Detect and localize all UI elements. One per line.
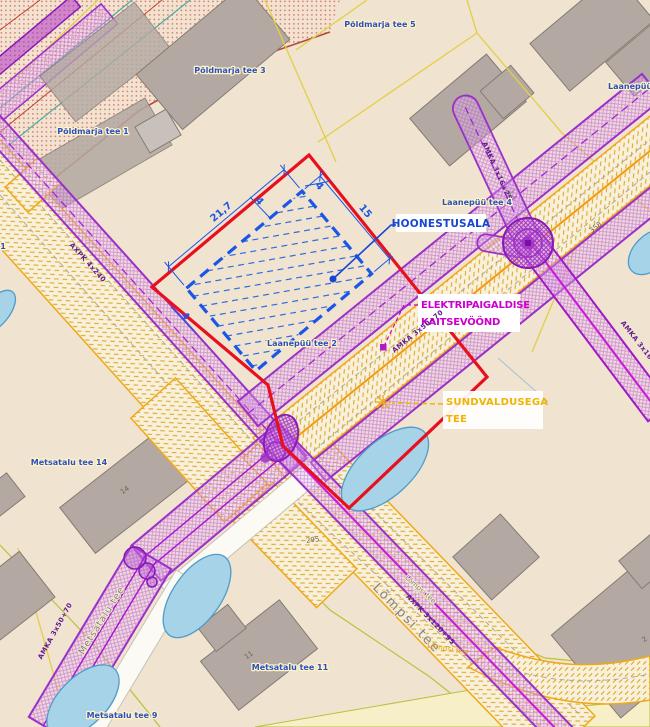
hoonestusala-label: HOONESTUSALA xyxy=(392,218,491,230)
parcel-label: Metsatalu tee 14 xyxy=(31,458,108,467)
map-canvas[interactable]: 21,7 15 4 4 4 HOONESTUSALA ELEKTRIPAIGAL… xyxy=(0,0,650,727)
hoonestusala-marker xyxy=(330,276,337,283)
callout-hoonestusala: HOONESTUSALA xyxy=(392,214,491,232)
sundvaldus-label-2: TEE xyxy=(446,414,467,425)
parcel-label: Laanepüü tee xyxy=(608,82,650,91)
parcel-label: Põldmarja tee 1 xyxy=(57,127,129,136)
sundvaldus-label-1: SUNDVALDUSEGA xyxy=(446,397,548,408)
sund-marker-icon xyxy=(375,395,391,409)
parcel-label: Metsatalu tee 11 xyxy=(252,663,329,672)
parcel-label: Laanepüü tee 4 xyxy=(442,198,512,207)
parcel-label: 1 xyxy=(0,242,6,251)
callout-sundvaldus: SUNDVALDUSEGA TEE xyxy=(443,391,548,429)
parcel-label: Põldmarja tee 3 xyxy=(194,66,265,75)
parcel-label: Metsatalu tee 9 xyxy=(87,711,158,720)
pole-cluster-east xyxy=(503,218,553,268)
parcel-label: Laanepüü tee 2 xyxy=(267,339,337,348)
parcel-label: Põldmarja tee 5 xyxy=(344,20,416,29)
map-viewport[interactable]: 21,7 15 4 4 4 HOONESTUSALA ELEKTRIPAIGAL… xyxy=(0,0,650,727)
kaitsevoond-marker xyxy=(380,344,387,351)
